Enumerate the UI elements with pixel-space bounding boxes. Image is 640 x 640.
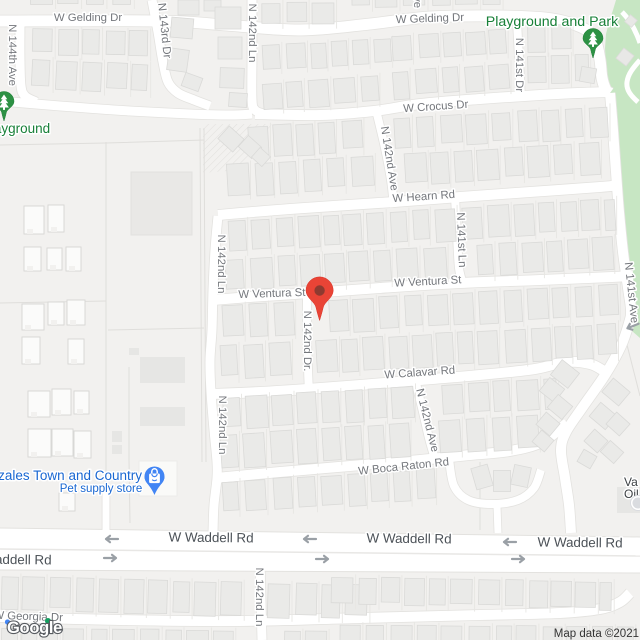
svg-text:d Ave: d Ave — [411, 0, 423, 8]
svg-text:Map data ©2021: Map data ©2021 — [554, 628, 639, 640]
svg-text:N 142nd Ln: N 142nd Ln — [215, 235, 227, 294]
svg-text:N 142nd Ln: N 142nd Ln — [253, 568, 265, 627]
svg-text:N 142nd Ln: N 142nd Ln — [246, 4, 258, 63]
svg-text:N 144th Ave: N 144th Ave — [6, 24, 18, 86]
svg-text:W Ventura St: W Ventura St — [238, 287, 306, 301]
svg-text:Playground: Playground — [0, 121, 50, 136]
svg-text:N 142nd Ln: N 142nd Ln — [216, 396, 228, 455]
svg-text:zales Town and Country: zales Town and Country — [0, 468, 142, 483]
svg-text:W Gelding Dr: W Gelding Dr — [396, 12, 465, 26]
svg-text:W Gelding Dr: W Gelding Dr — [54, 12, 123, 24]
svg-text:Google: Google — [7, 619, 62, 637]
svg-text:Playground and Park: Playground and Park — [486, 14, 619, 30]
svg-text:Pet supply store: Pet supply store — [60, 483, 142, 495]
svg-text:W Waddell Rd: W Waddell Rd — [0, 551, 52, 567]
svg-text:N 141st Ln: N 141st Ln — [454, 212, 468, 267]
svg-text:N 142nd Dr.: N 142nd Dr. — [301, 311, 313, 372]
svg-text:W Waddell Rd: W Waddell Rd — [537, 534, 622, 550]
svg-text:W Waddell Rd: W Waddell Rd — [168, 529, 253, 545]
svg-text:N 141st Dr: N 141st Dr — [513, 38, 525, 93]
svg-text:W Waddell Rd: W Waddell Rd — [366, 530, 451, 546]
